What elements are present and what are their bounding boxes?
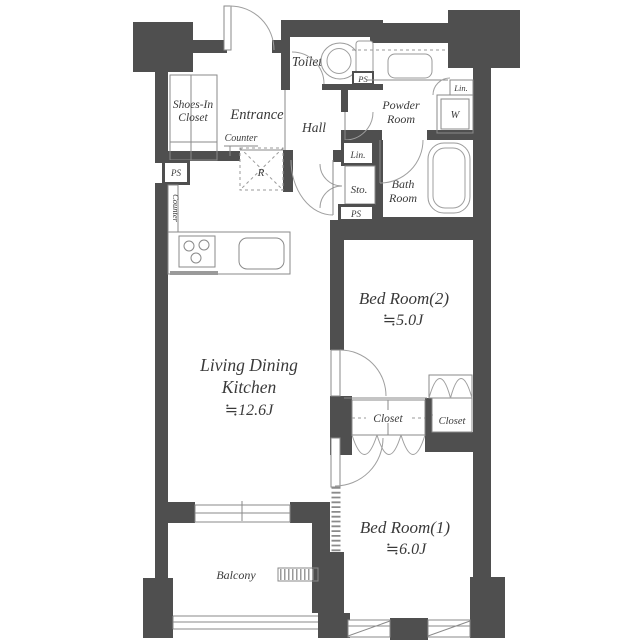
entrance-label: Entrance — [229, 107, 284, 123]
closet1-label: Closet — [373, 413, 403, 425]
entrance-counter-label: Counter — [225, 133, 258, 144]
kitchen-edge-bar — [170, 271, 218, 275]
vanity-sink-icon — [388, 54, 432, 78]
shoes-in-closet-label-1: Shoes-In — [173, 99, 213, 111]
ldk-door-arc — [291, 160, 333, 215]
ldk-label-2: Kitchen — [221, 377, 277, 397]
wall-window-mullion — [390, 618, 428, 640]
closet2-door-frame — [429, 375, 472, 398]
bedroom2-area: Bed Room(2) ≒5.0J — [331, 289, 449, 398]
kitchen-counter-label: Counter — [171, 194, 181, 223]
bedroom2-door-leaf — [331, 350, 340, 396]
balcony-label: Balcony — [216, 568, 256, 582]
wall-hall-ldk — [333, 150, 341, 162]
wall-sto-bath — [375, 140, 383, 217]
ps-label-toilet: PS — [357, 74, 368, 84]
entrance-door-leaf — [224, 6, 231, 50]
storage-label: Sto. — [351, 184, 368, 196]
wall-top-entrance-left — [193, 40, 227, 53]
closet1-door-arc — [401, 435, 425, 455]
bedroom1-area: Bed Room(1) ≒6.0J — [331, 438, 470, 637]
toilet-room: Toilet PS — [292, 41, 374, 85]
bedroom2-area-value: ≒5.0J — [383, 312, 424, 329]
wall-right — [473, 68, 491, 577]
linen-mid-label: Lin. — [349, 151, 365, 161]
wall-bedroom1-west — [330, 552, 344, 613]
floor-plan: Shoes-In Closet Entrance Counter Toilet … — [0, 0, 640, 640]
wall-balcony-ldk-right — [290, 502, 330, 523]
bedroom2-label: Bed Room(2) — [359, 289, 450, 308]
wall-top-right-block — [448, 10, 520, 68]
wall-toilet-top — [281, 20, 383, 37]
wall-ldk-closet — [330, 396, 352, 438]
closet1-door-arc — [352, 435, 377, 455]
closet2-door-arc — [429, 379, 451, 399]
entrance-door-arc — [230, 6, 274, 50]
bedroom1-label: Bed Room(1) — [360, 518, 451, 537]
closet2-label: Closet — [439, 416, 467, 427]
washer-label: W — [451, 110, 461, 121]
wall-toilet-bottom-a — [281, 84, 290, 90]
wall-powder-bottom-b — [427, 130, 473, 140]
wall-top-left-block — [133, 22, 193, 72]
ps-label-left: PS — [170, 168, 181, 178]
wall-bottom-right-foot — [470, 577, 505, 638]
wall-ldk-bedroom2 — [330, 220, 344, 350]
bedroom1-area-value: ≒6.0J — [386, 541, 427, 558]
wall-closet-bottom-right — [425, 432, 491, 452]
wall-hall-powder-a — [341, 90, 348, 112]
linen-top-door-arc — [433, 78, 450, 95]
ldk-label-1: Living Dining — [199, 355, 298, 375]
linen-top-label: Lin. — [453, 83, 467, 93]
bath-room: Bath Room — [380, 140, 470, 213]
ldk-area-value: ≒12.6J — [225, 402, 274, 419]
hall-label: Hall — [301, 120, 326, 135]
bath-room-label-1: Bath — [392, 177, 415, 191]
wall-bottom-left-foot — [143, 578, 173, 638]
storage-door-arc-top — [320, 164, 342, 186]
bedroom2-door-arc — [340, 350, 386, 396]
wall-closet-divider — [425, 398, 432, 435]
closet2-door-arc — [451, 379, 473, 399]
toilet-tank-icon — [356, 41, 373, 73]
closet1-door-arc — [377, 435, 401, 455]
wall-bedroom1-foot — [318, 613, 350, 638]
bedroom1-door-leaf — [331, 438, 340, 487]
wall-left-upper — [155, 72, 168, 163]
floor-plan-svg: Shoes-In Closet Entrance Counter Toilet … — [0, 0, 640, 640]
wall-balcony-ldk-left — [155, 502, 195, 523]
powder-room-label-2: Room — [386, 112, 415, 126]
bath-room-label-2: Room — [388, 191, 417, 205]
powder-room-label-1: Powder — [381, 98, 420, 112]
ldk-area: PS Counter R Living Dining Kitchen ≒12.6… — [162, 148, 298, 419]
ps-label-mid: PS — [350, 209, 361, 219]
wall-powder-top — [370, 23, 450, 43]
shoes-in-closet-label-2: Closet — [178, 112, 208, 124]
refrigerator-label: R — [257, 167, 265, 179]
